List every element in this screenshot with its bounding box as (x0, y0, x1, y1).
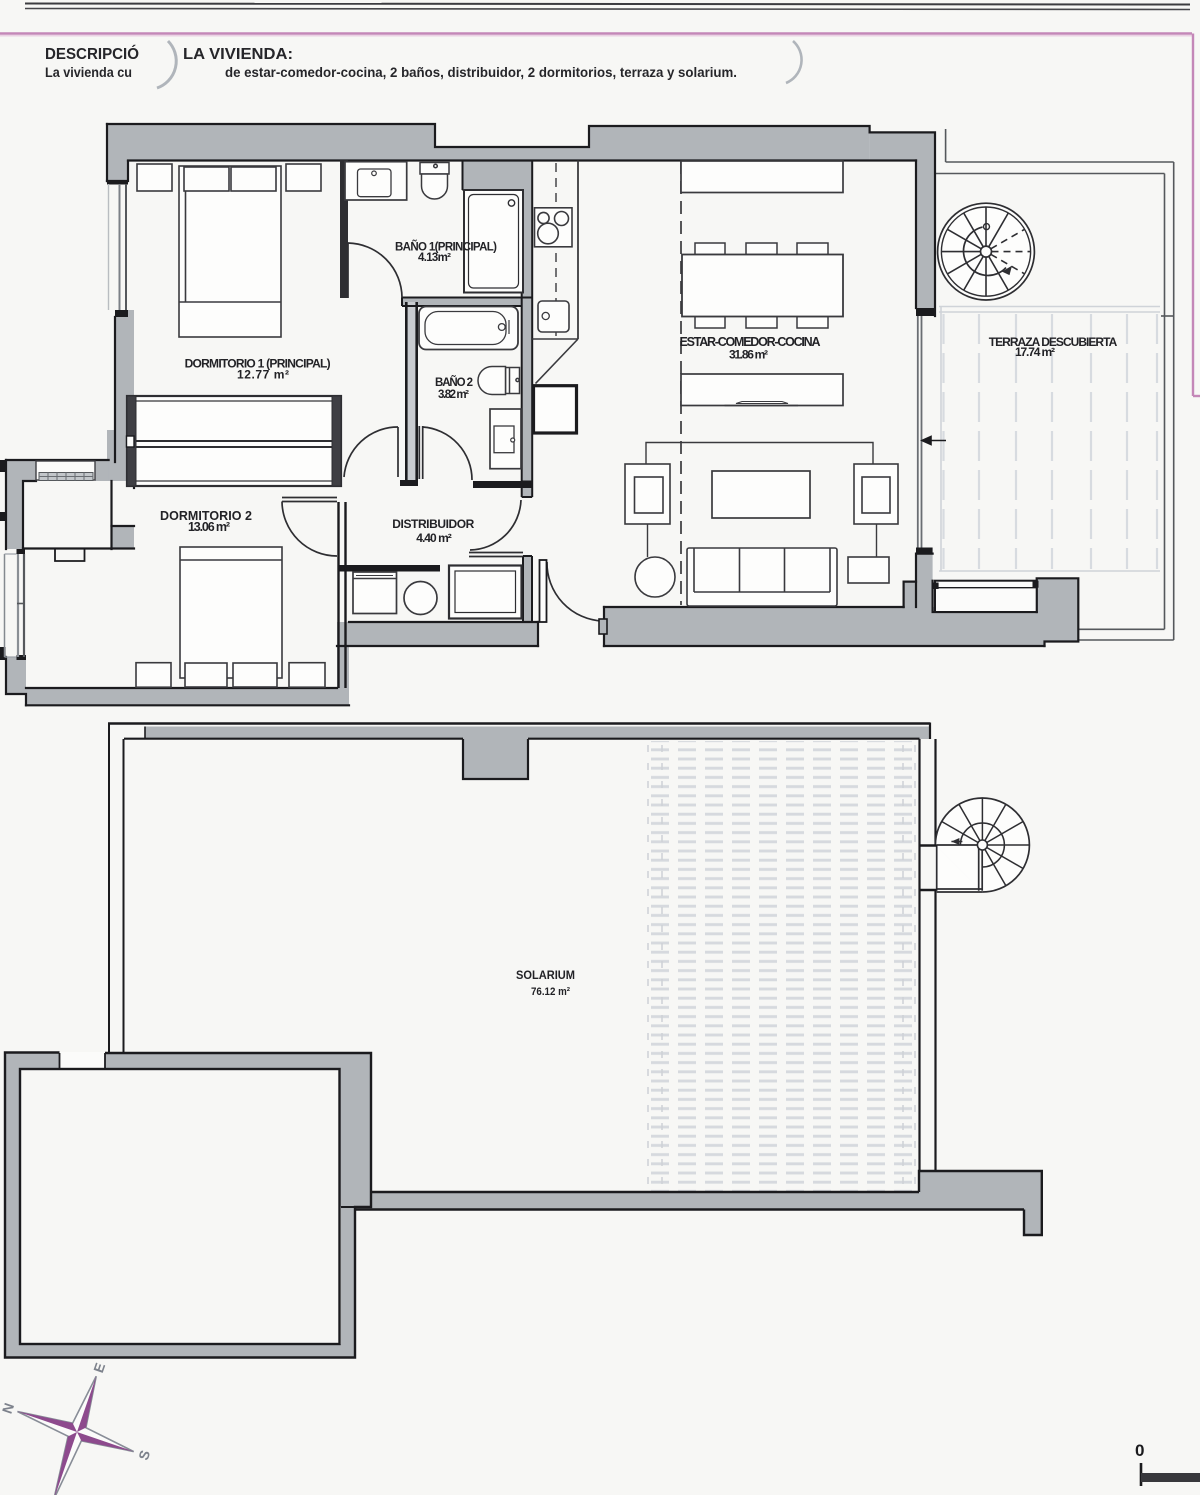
svg-text:0: 0 (1135, 1441, 1144, 1460)
svg-text:76.12 m²: 76.12 m² (531, 986, 570, 998)
svg-text:DESCRIPCIÓ: DESCRIPCIÓ (45, 45, 139, 63)
svg-text:31.86 m²: 31.86 m² (729, 348, 768, 362)
svg-text:12.77 m²: 12.77 m² (237, 368, 289, 382)
svg-text:BAÑO 2: BAÑO 2 (435, 376, 473, 389)
svg-text:de estar-comedor-cocina, 2 bañ: de estar-comedor-cocina, 2 baños, distri… (225, 65, 737, 80)
svg-text:17.74 m²: 17.74 m² (1015, 345, 1055, 359)
svg-text:4.13m²: 4.13m² (418, 252, 451, 264)
svg-text:La vivienda cu: La vivienda cu (45, 65, 132, 80)
svg-text:13.06 m²: 13.06 m² (188, 520, 230, 534)
svg-text:4.40 m²: 4.40 m² (416, 531, 452, 545)
svg-text:DISTRIBUIDOR: DISTRIBUIDOR (392, 517, 474, 531)
svg-text:LA VIVIENDA:: LA VIVIENDA: (183, 46, 293, 63)
svg-text:SOLARIUM: SOLARIUM (516, 970, 575, 982)
svg-text:3.82 m²: 3.82 m² (438, 389, 469, 401)
